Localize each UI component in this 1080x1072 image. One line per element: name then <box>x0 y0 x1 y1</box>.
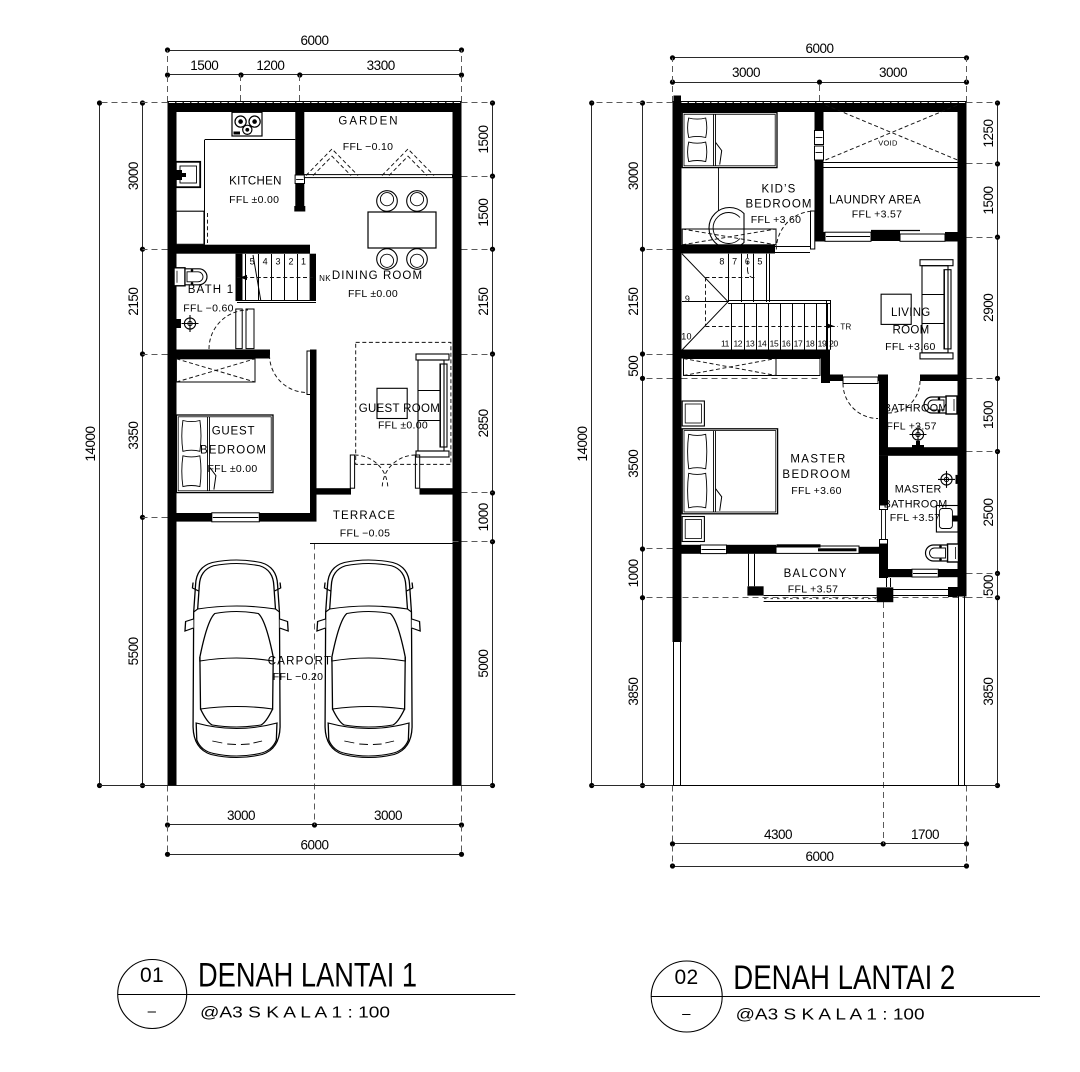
svg-text:5: 5 <box>250 257 255 267</box>
svg-text:3000: 3000 <box>879 65 907 80</box>
svg-text:12: 12 <box>733 339 742 349</box>
svg-text:14: 14 <box>758 339 767 349</box>
svg-text:14000: 14000 <box>83 426 98 461</box>
svg-text:1000: 1000 <box>476 503 491 531</box>
svg-text:FFL +3.57: FFL +3.57 <box>852 209 902 221</box>
svg-text:FFL +3.60: FFL +3.60 <box>751 214 801 226</box>
svg-text:KITCHEN: KITCHEN <box>229 176 282 188</box>
svg-text:BATH 1: BATH 1 <box>188 284 235 296</box>
svg-text:7: 7 <box>732 257 737 267</box>
svg-text:2150: 2150 <box>626 288 641 316</box>
svg-text:2150: 2150 <box>126 288 141 316</box>
svg-text:19: 19 <box>818 339 827 349</box>
svg-text:15: 15 <box>770 339 779 349</box>
svg-text:FFL +3.57: FFL +3.57 <box>886 421 936 433</box>
svg-text:1500: 1500 <box>476 125 491 153</box>
svg-text:–: – <box>682 1006 691 1023</box>
svg-text:NK: NK <box>319 274 331 283</box>
svg-text:3: 3 <box>275 257 280 267</box>
svg-text:@A3 S K A L A 1 : 100: @A3 S K A L A 1 : 100 <box>200 1005 390 1022</box>
svg-text:ROOM: ROOM <box>893 325 930 337</box>
svg-text:GUEST: GUEST <box>212 426 256 438</box>
svg-text:13: 13 <box>746 339 755 349</box>
svg-text:FFL ±0.00: FFL ±0.00 <box>348 288 398 300</box>
svg-text:VOID: VOID <box>878 139 898 148</box>
svg-text:DENAH LANTAI 1: DENAH LANTAI 1 <box>198 957 417 995</box>
svg-text:CARPORT: CARPORT <box>268 656 332 668</box>
svg-text:BALCONY: BALCONY <box>784 568 848 580</box>
svg-text:DENAH LANTAI 2: DENAH LANTAI 2 <box>733 959 955 997</box>
svg-text:LAUNDRY AREA: LAUNDRY AREA <box>829 195 921 207</box>
svg-text:MASTER: MASTER <box>895 484 942 496</box>
svg-text:500: 500 <box>626 356 641 377</box>
svg-text:1000: 1000 <box>626 559 641 587</box>
svg-text:1: 1 <box>301 257 306 267</box>
svg-text:6000: 6000 <box>805 41 833 56</box>
svg-text:LIVING: LIVING <box>891 307 931 319</box>
svg-text:2850: 2850 <box>476 409 491 437</box>
svg-text:1250: 1250 <box>981 119 996 147</box>
svg-text:3500: 3500 <box>626 450 641 478</box>
svg-text:BEDROOM: BEDROOM <box>782 469 851 481</box>
svg-text:18: 18 <box>806 339 815 349</box>
svg-text:3000: 3000 <box>732 65 760 80</box>
svg-text:FFL −0.60: FFL −0.60 <box>183 303 233 315</box>
svg-text:1500: 1500 <box>981 186 996 214</box>
svg-text:2500: 2500 <box>981 498 996 526</box>
svg-text:17: 17 <box>794 339 803 349</box>
svg-text:11: 11 <box>721 339 730 349</box>
svg-text:16: 16 <box>782 339 791 349</box>
svg-text:14000: 14000 <box>575 426 590 461</box>
svg-text:2150: 2150 <box>476 288 491 316</box>
svg-text:3850: 3850 <box>626 678 641 706</box>
svg-text:FFL ±0.00: FFL ±0.00 <box>207 463 257 475</box>
svg-text:TR: TR <box>840 323 851 332</box>
svg-text:MASTER: MASTER <box>790 454 846 466</box>
svg-text:3000: 3000 <box>126 162 141 190</box>
svg-text:3350: 3350 <box>126 422 141 450</box>
svg-text:GUEST ROOM: GUEST ROOM <box>359 403 440 415</box>
svg-text:FFL −0.20: FFL −0.20 <box>273 671 323 683</box>
svg-text:1700: 1700 <box>911 827 939 842</box>
svg-text:FFL +3.57: FFL +3.57 <box>788 584 838 596</box>
svg-text:6000: 6000 <box>805 849 833 864</box>
svg-text:3000: 3000 <box>626 162 641 190</box>
svg-text:FFL +3.57: FFL +3.57 <box>890 512 940 524</box>
svg-text:3850: 3850 <box>981 678 996 706</box>
svg-text:BEDROOM: BEDROOM <box>200 445 267 457</box>
svg-text:02: 02 <box>675 966 699 989</box>
svg-text:3300: 3300 <box>367 58 395 73</box>
svg-text:01: 01 <box>140 964 164 987</box>
svg-text:KID’S: KID’S <box>762 184 797 196</box>
svg-text:BATHROOM: BATHROOM <box>884 499 948 511</box>
svg-text:FFL +3.60: FFL +3.60 <box>885 341 935 353</box>
svg-text:@A3 S K A L A 1 : 100: @A3 S K A L A 1 : 100 <box>736 1007 925 1024</box>
svg-text:DINING ROOM: DINING ROOM <box>332 270 423 282</box>
svg-text:3000: 3000 <box>374 808 402 823</box>
svg-text:3000: 3000 <box>227 808 255 823</box>
svg-text:FFL −0.10: FFL −0.10 <box>343 141 393 153</box>
svg-text:BEDROOM: BEDROOM <box>745 199 812 211</box>
svg-text:TERRACE: TERRACE <box>333 510 396 522</box>
svg-text:FFL ±0.00: FFL ±0.00 <box>378 420 428 432</box>
svg-text:10: 10 <box>681 332 692 342</box>
svg-text:1200: 1200 <box>256 58 284 73</box>
svg-text:20: 20 <box>829 339 838 349</box>
svg-text:4: 4 <box>263 257 268 267</box>
svg-text:5000: 5000 <box>476 650 491 678</box>
svg-text:500: 500 <box>981 575 996 596</box>
svg-text:8: 8 <box>719 257 724 267</box>
svg-text:6000: 6000 <box>300 837 328 852</box>
svg-text:9: 9 <box>685 294 690 304</box>
svg-text:1500: 1500 <box>476 199 491 227</box>
svg-text:1500: 1500 <box>190 58 218 73</box>
svg-text:2: 2 <box>288 257 293 267</box>
svg-text:4300: 4300 <box>764 827 792 842</box>
svg-text:5: 5 <box>757 257 762 267</box>
svg-text:1500: 1500 <box>981 401 996 429</box>
svg-text:GARDEN: GARDEN <box>338 116 399 128</box>
svg-text:FFL +3.60: FFL +3.60 <box>791 485 841 497</box>
svg-text:FFL ±0.00: FFL ±0.00 <box>229 194 279 206</box>
svg-text:–: – <box>148 1003 157 1020</box>
svg-text:2900: 2900 <box>981 294 996 322</box>
svg-text:6000: 6000 <box>300 33 328 48</box>
svg-text:5500: 5500 <box>126 637 141 665</box>
svg-text:FFL −0.05: FFL −0.05 <box>340 528 390 540</box>
svg-text:BATHROOM: BATHROOM <box>884 403 948 415</box>
